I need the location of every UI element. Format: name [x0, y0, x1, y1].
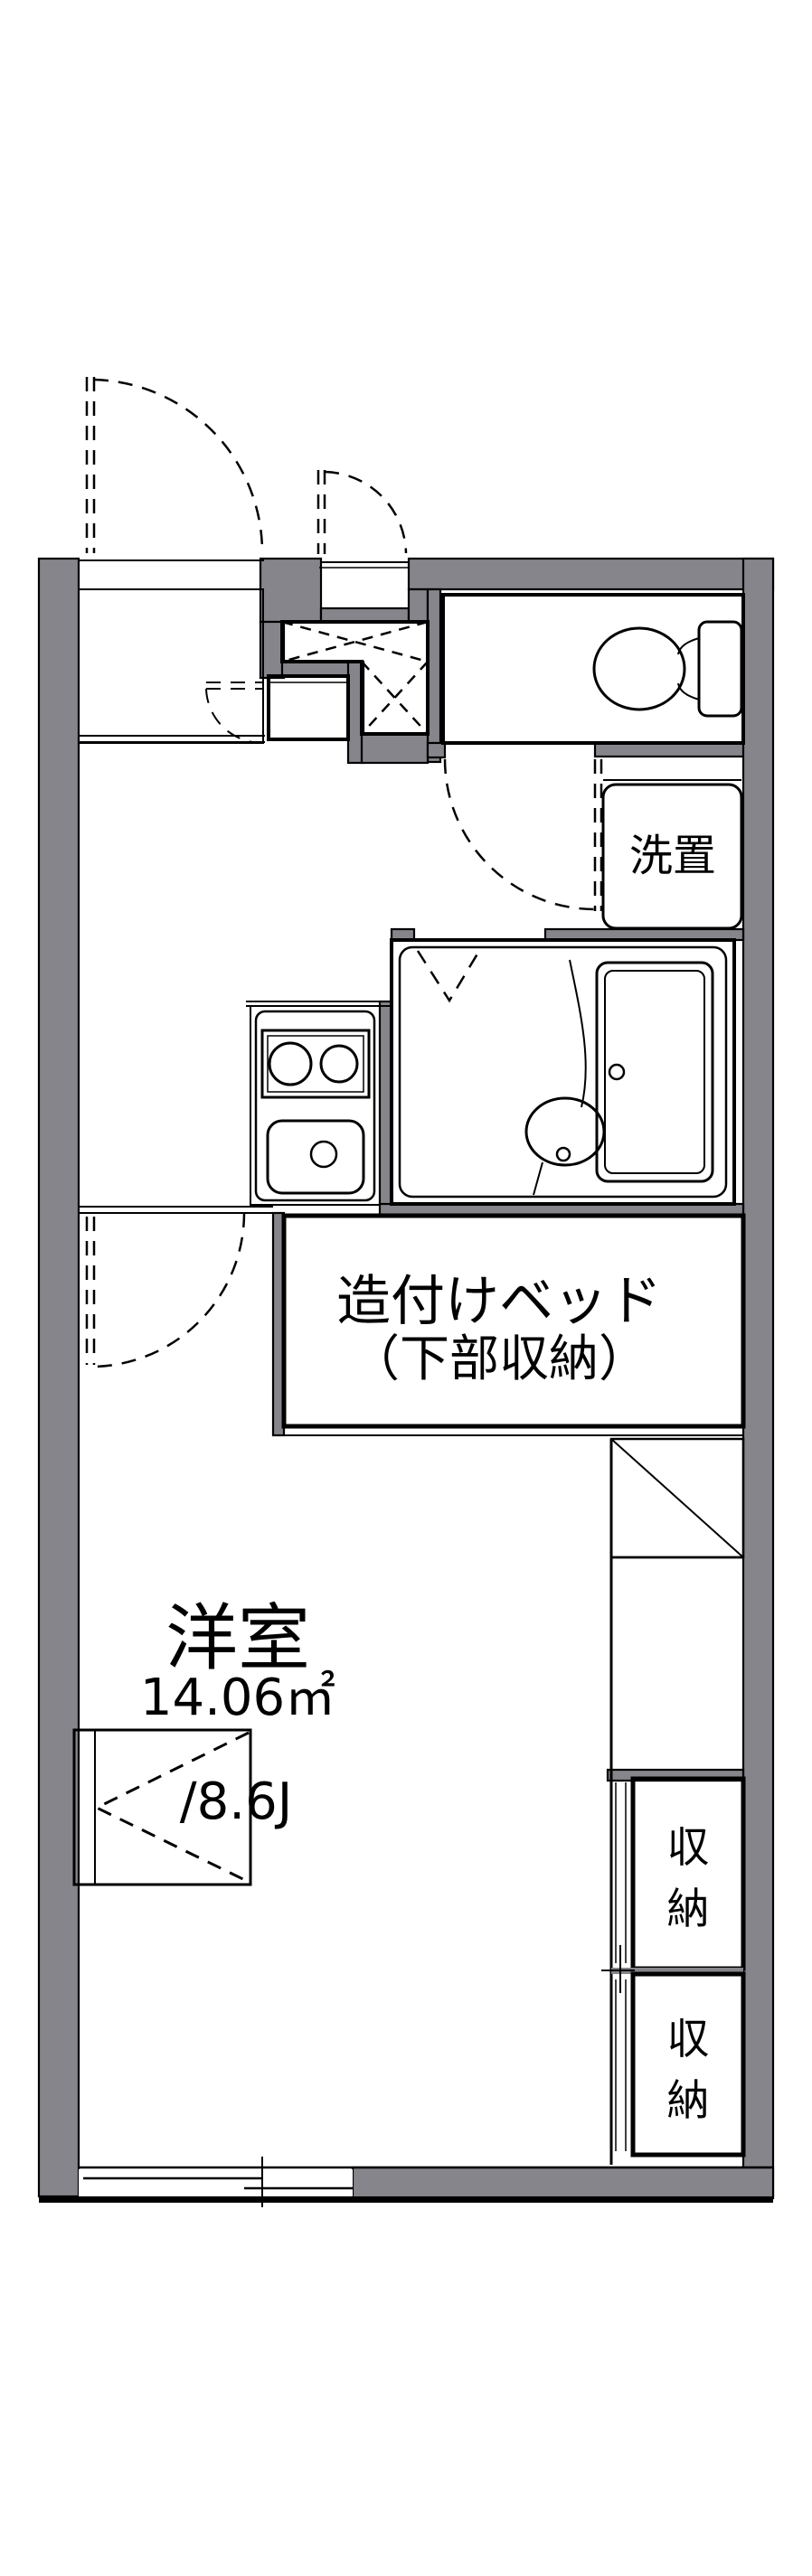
bathroom	[392, 940, 734, 1204]
stove-icon	[262, 1030, 369, 1097]
wall-left	[39, 559, 79, 2196]
bed-label-line1: 造付けベッド	[336, 1270, 662, 1333]
washer-label: 洗置	[629, 831, 716, 881]
sink-drain-icon	[311, 1142, 336, 1167]
washbasin-stand-line	[533, 1162, 543, 1195]
storage-lower	[633, 1974, 743, 2155]
kitchen-counter	[256, 1011, 374, 1200]
floor-plan: 洗置 造付けベッド （下部収納）	[0, 0, 812, 2576]
genkan-room	[79, 589, 263, 743]
wall-top-right	[409, 559, 773, 589]
washbasin-drain-icon	[557, 1148, 570, 1161]
washbasin-icon	[526, 1098, 604, 1165]
niche-door-arc	[325, 472, 406, 553]
entrance-doors	[87, 377, 406, 554]
wall-bottom-right	[353, 2167, 773, 2198]
toilet-bowl-icon	[594, 628, 685, 710]
meter-box-niche	[321, 562, 409, 608]
wall-toilet-left	[428, 589, 440, 762]
bathtub-inner	[605, 971, 704, 1173]
bottom-window-opening	[79, 2169, 353, 2196]
burner-right-icon	[321, 1046, 357, 1082]
floor-plan-page: 洗置 造付けベッド （下部収納）	[0, 0, 812, 2576]
bathroom-folding-door	[418, 951, 479, 1001]
fridge-diagonal	[611, 1439, 743, 1557]
shoe-cabinet	[269, 676, 348, 739]
main-room-area-jo: /8.6J	[180, 1772, 292, 1831]
wall-under-closet	[362, 734, 428, 763]
wall-right	[743, 559, 773, 2196]
burner-left-icon	[269, 1043, 311, 1085]
room-boundary	[79, 1207, 273, 1367]
bathtub-faucet-icon	[609, 1065, 624, 1079]
wall-toilet-bottom-right	[595, 743, 746, 757]
kitchen	[246, 1001, 392, 1205]
bathtub-icon	[597, 963, 713, 1181]
storage-lower-char2: 納	[667, 2076, 710, 2126]
room-door-arc	[90, 1213, 244, 1367]
shower-hose-line	[570, 960, 586, 1107]
bed-label-line2: （下部収納）	[350, 1330, 648, 1387]
sink-icon	[268, 1121, 364, 1193]
wall-bridge	[409, 589, 428, 622]
washer-space: 洗置	[603, 780, 741, 928]
wall-toilet-bottom-left	[428, 743, 445, 757]
toilet-tank-icon	[699, 622, 741, 716]
wall-top-mid-a	[260, 559, 321, 622]
built-in-bed: 造付けベッド （下部収納）	[273, 1216, 743, 1435]
storage-upper	[633, 1779, 743, 1969]
storage-lower-char1: 収	[667, 2015, 710, 2064]
bathroom-floor	[400, 947, 726, 1197]
wall-bottom-outline	[39, 2196, 773, 2203]
main-room: 洋室 14.06㎡ /8.6J	[140, 1596, 335, 1831]
main-room-area-m2: 14.06㎡	[140, 1669, 335, 1727]
toilet-door-arc	[445, 759, 595, 909]
right-column: 収 納 収 納	[601, 1439, 743, 2165]
wall-above-shoebox	[282, 662, 350, 676]
wall-under-niche	[321, 608, 409, 622]
entrance-door-arc	[94, 380, 262, 553]
storage-upper-char2: 納	[667, 1885, 710, 1934]
storage-upper-char1: 収	[667, 1823, 710, 1873]
